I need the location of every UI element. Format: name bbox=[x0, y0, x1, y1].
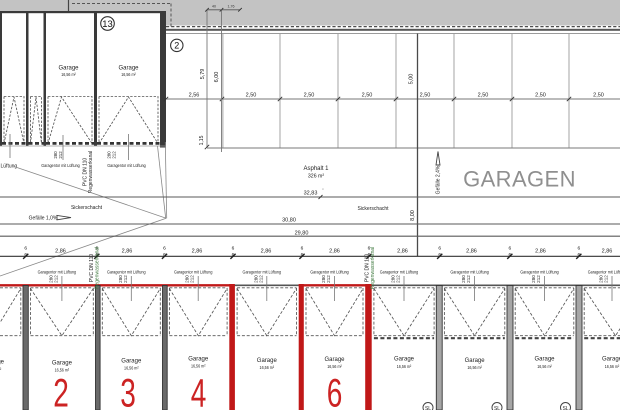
svg-text:SL: SL bbox=[562, 406, 568, 410]
svg-text:2: 2 bbox=[174, 41, 179, 51]
svg-text:2,86: 2,86 bbox=[192, 249, 203, 255]
svg-text:2,86: 2,86 bbox=[55, 249, 66, 255]
svg-text:6: 6 bbox=[163, 252, 166, 258]
svg-text:SL: SL bbox=[494, 406, 500, 410]
svg-text:Garage: Garage bbox=[118, 65, 139, 71]
svg-text:2,50: 2,50 bbox=[478, 93, 489, 99]
svg-text:6: 6 bbox=[163, 246, 166, 252]
svg-text:SL: SL bbox=[425, 406, 431, 410]
svg-text:2,86: 2,86 bbox=[535, 249, 546, 255]
svg-text:2,86: 2,86 bbox=[602, 249, 613, 255]
svg-text:212: 212 bbox=[326, 275, 331, 283]
svg-text:Garagentor mit Lüftung: Garagentor mit Lüftung bbox=[310, 269, 349, 274]
svg-text:16,56 m²: 16,56 m² bbox=[537, 364, 552, 370]
svg-text:2,86: 2,86 bbox=[261, 249, 272, 255]
svg-text:16,56 m²: 16,56 m² bbox=[124, 366, 139, 372]
svg-text:2,50: 2,50 bbox=[304, 93, 315, 99]
svg-text:212: 212 bbox=[190, 275, 195, 283]
svg-text:6: 6 bbox=[508, 252, 511, 258]
svg-text:Garagentor mit Lüftung: Garagentor mit Lüftung bbox=[107, 163, 146, 168]
svg-text:6: 6 bbox=[24, 246, 27, 252]
svg-text:Garage: Garage bbox=[52, 360, 73, 366]
svg-text:16,56 m²: 16,56 m² bbox=[61, 72, 76, 78]
svg-text:6: 6 bbox=[577, 246, 580, 252]
svg-text:32,83: 32,83 bbox=[304, 191, 318, 197]
svg-text:Garagentor mit Lüftung: Garagentor mit Lüftung bbox=[174, 269, 213, 274]
svg-text:212: 212 bbox=[258, 275, 263, 283]
svg-text:212: 212 bbox=[123, 275, 128, 283]
svg-text:212: 212 bbox=[536, 275, 541, 283]
svg-text:212: 212 bbox=[396, 275, 401, 283]
svg-text:6: 6 bbox=[232, 252, 235, 258]
svg-text:Garagentor mit Lüftung: Garagentor mit Lüftung bbox=[41, 163, 80, 168]
svg-text:Garage: Garage bbox=[121, 359, 142, 365]
svg-text:212: 212 bbox=[111, 151, 116, 159]
svg-text:16,56 m²: 16,56 m² bbox=[191, 363, 206, 369]
svg-text:Garagentor mit Lüftung: Garagentor mit Lüftung bbox=[588, 269, 620, 274]
svg-text:2: 2 bbox=[53, 372, 69, 410]
svg-text:Regenwasserkanal: Regenwasserkanal bbox=[95, 247, 101, 290]
svg-text:Gefälle 2,4%: Gefälle 2,4% bbox=[436, 165, 442, 194]
svg-text:16,56 m²: 16,56 m² bbox=[397, 364, 412, 370]
svg-text:16,56 m²: 16,56 m² bbox=[605, 364, 620, 370]
svg-text:Garagentor mit Lüftung: Garagentor mit Lüftung bbox=[450, 269, 489, 274]
svg-text:Garage: Garage bbox=[534, 357, 555, 363]
svg-text:30,80: 30,80 bbox=[282, 218, 296, 224]
svg-text:Gefälle 1,0%: Gefälle 1,0% bbox=[29, 216, 58, 222]
svg-text:Garage: Garage bbox=[324, 357, 345, 363]
svg-text:2,50: 2,50 bbox=[593, 93, 604, 99]
svg-text:2,86: 2,86 bbox=[329, 249, 340, 255]
svg-text:Asphalt 1: Asphalt 1 bbox=[303, 166, 329, 172]
svg-text:Garage: Garage bbox=[0, 360, 5, 366]
svg-text:5,00: 5,00 bbox=[409, 74, 415, 85]
svg-text:3: 3 bbox=[120, 372, 136, 410]
svg-text:Garage: Garage bbox=[188, 357, 209, 363]
svg-text:6: 6 bbox=[232, 246, 235, 252]
svg-text:Garagentor mit Lüftung: Garagentor mit Lüftung bbox=[243, 269, 282, 274]
svg-text:212: 212 bbox=[466, 275, 471, 283]
svg-text:6: 6 bbox=[508, 246, 511, 252]
svg-text:2,50: 2,50 bbox=[535, 93, 546, 99]
svg-text:6: 6 bbox=[577, 252, 580, 258]
svg-text:8,00: 8,00 bbox=[410, 210, 416, 221]
svg-text:16,56 m²: 16,56 m² bbox=[467, 365, 482, 371]
svg-text:6: 6 bbox=[301, 252, 304, 258]
svg-text:6: 6 bbox=[327, 372, 343, 410]
svg-text:2,86: 2,86 bbox=[397, 249, 408, 255]
svg-text:16,56 m²: 16,56 m² bbox=[260, 365, 275, 371]
svg-text:326 m²: 326 m² bbox=[308, 174, 324, 180]
svg-text:2,50: 2,50 bbox=[362, 93, 373, 99]
svg-text:Sickerschacht: Sickerschacht bbox=[71, 205, 103, 211]
svg-text:Garage: Garage bbox=[602, 357, 620, 363]
svg-text:Sickerschacht: Sickerschacht bbox=[357, 206, 389, 212]
svg-text:13: 13 bbox=[102, 19, 113, 30]
svg-text:Garagentor mit Lüftung: Garagentor mit Lüftung bbox=[380, 269, 419, 274]
svg-text:16,56 m²: 16,56 m² bbox=[327, 364, 342, 370]
svg-text:5,79: 5,79 bbox=[200, 69, 206, 80]
svg-text:6: 6 bbox=[301, 246, 304, 252]
svg-text:Garage: Garage bbox=[257, 358, 278, 364]
svg-text:29,80: 29,80 bbox=[295, 230, 309, 236]
svg-text:Regenwasserkanal: Regenwasserkanal bbox=[370, 247, 376, 290]
svg-text:Garage: Garage bbox=[465, 358, 486, 364]
svg-text:212: 212 bbox=[53, 275, 58, 283]
svg-text:1,76: 1,76 bbox=[228, 4, 235, 8]
svg-text:2,86: 2,86 bbox=[466, 249, 477, 255]
svg-text:6: 6 bbox=[438, 252, 441, 258]
svg-text:16,56 m²: 16,56 m² bbox=[121, 72, 136, 78]
svg-text:4: 4 bbox=[191, 372, 207, 410]
svg-text:40: 40 bbox=[212, 4, 216, 8]
svg-text:Garagentor mit Lüftung: Garagentor mit Lüftung bbox=[520, 269, 559, 274]
svg-text:2,56: 2,56 bbox=[189, 93, 200, 99]
svg-text:': ' bbox=[323, 189, 324, 195]
svg-text:2,50: 2,50 bbox=[246, 93, 257, 99]
svg-text:6: 6 bbox=[438, 246, 441, 252]
svg-text:Garage: Garage bbox=[394, 357, 415, 363]
svg-text:Regenwasserkanal: Regenwasserkanal bbox=[88, 151, 94, 194]
svg-text:6: 6 bbox=[24, 252, 27, 258]
svg-text:Garagentor mit Lüftung: Garagentor mit Lüftung bbox=[107, 269, 146, 274]
svg-text:2,86: 2,86 bbox=[122, 249, 133, 255]
svg-text:6,00: 6,00 bbox=[214, 72, 220, 83]
svg-text:1,15: 1,15 bbox=[199, 135, 205, 145]
svg-text:Garagentor mit Lüftung: Garagentor mit Lüftung bbox=[38, 269, 77, 274]
svg-text:2,50: 2,50 bbox=[420, 93, 431, 99]
svg-text:212: 212 bbox=[58, 151, 63, 159]
svg-text:Garage: Garage bbox=[58, 65, 79, 71]
svg-text:GARAGEN: GARAGEN bbox=[463, 167, 576, 192]
svg-text:212: 212 bbox=[604, 275, 609, 283]
